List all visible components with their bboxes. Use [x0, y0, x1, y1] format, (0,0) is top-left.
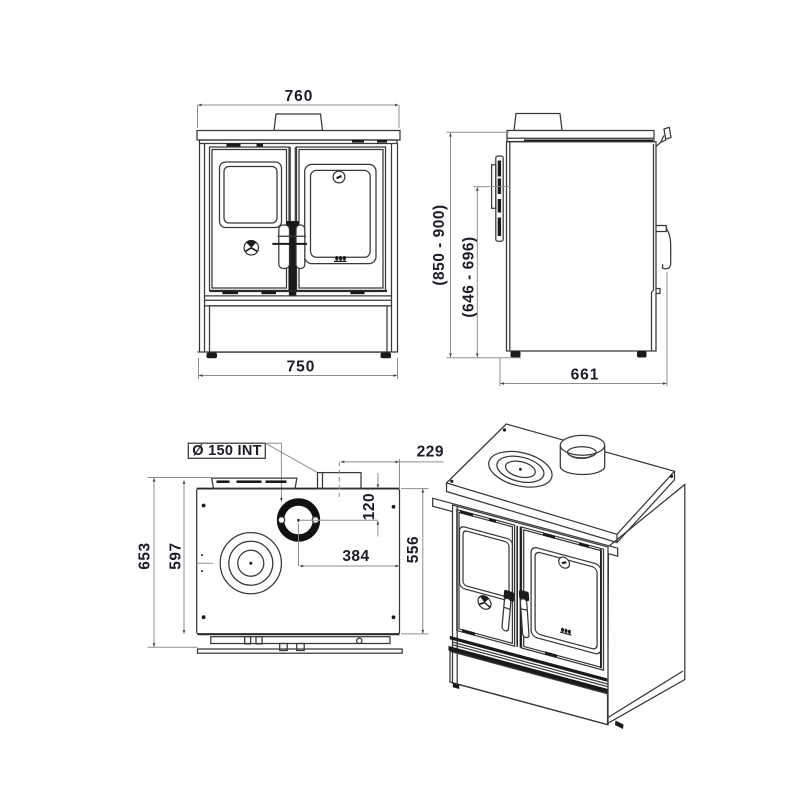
svg-text:120: 120 [361, 493, 378, 520]
svg-text:Ø 150 INT: Ø 150 INT [192, 443, 262, 459]
svg-text:(850 - 900): (850 - 900) [431, 204, 448, 285]
svg-text:750: 750 [287, 359, 316, 376]
svg-text:760: 760 [285, 88, 314, 105]
svg-text:597: 597 [168, 542, 185, 569]
svg-text:661: 661 [571, 367, 600, 384]
svg-text:653: 653 [137, 542, 154, 569]
svg-text:384: 384 [342, 548, 369, 565]
svg-text:556: 556 [405, 536, 422, 563]
svg-text:229: 229 [417, 444, 444, 461]
svg-text:(646 - 696): (646 - 696) [461, 236, 478, 317]
